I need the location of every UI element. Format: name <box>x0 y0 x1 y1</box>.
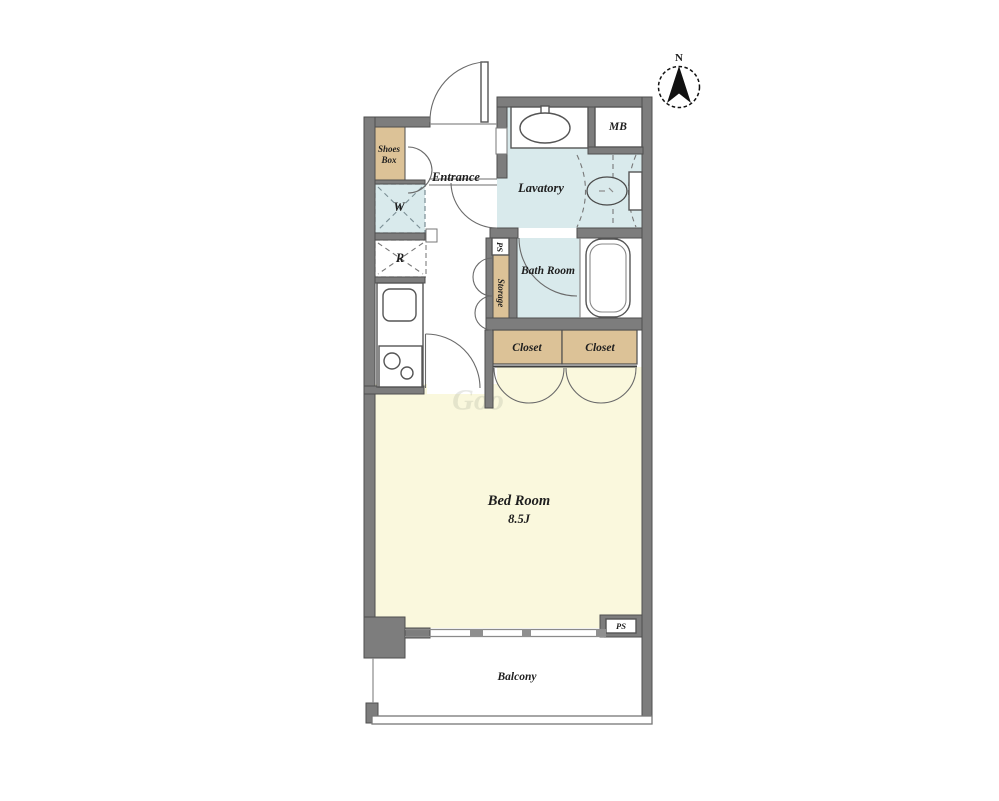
wall <box>577 228 642 238</box>
wall <box>497 97 652 107</box>
window-frame-tick <box>470 629 483 637</box>
shoes-box-label-line1: Shoes <box>378 144 401 154</box>
wash-basin <box>520 113 570 143</box>
pipe-space-upper-label: PS <box>495 242 505 252</box>
stove-burner <box>384 353 400 369</box>
wall-niche <box>496 128 507 154</box>
washing-machine-label: W <box>393 200 405 214</box>
wall <box>642 97 652 723</box>
wall-niche <box>426 229 437 242</box>
wall <box>375 180 425 184</box>
wall-pillar <box>364 617 405 658</box>
bed-room-size-label: 8.5J <box>508 512 531 526</box>
closet-right-label: Closet <box>585 342 615 354</box>
shoes-box-label-line2: Box <box>380 155 397 165</box>
storage-label: Storage <box>496 279 506 308</box>
bath-fixtures <box>580 238 630 318</box>
wall <box>509 238 517 330</box>
front-door-leaf <box>481 62 488 122</box>
bathroom-floor <box>517 238 580 318</box>
kitchen <box>377 283 423 387</box>
entrance-label: Entrance <box>431 170 480 184</box>
bathtub <box>586 239 630 317</box>
floor-plan-page: Goo <box>0 0 999 801</box>
bath-room-label: Bath Room <box>520 265 575 277</box>
compass-north-label: N <box>675 52 683 64</box>
wall <box>588 147 643 154</box>
balcony-railing <box>372 716 652 724</box>
wall <box>485 330 493 408</box>
window-frame-tick <box>522 629 531 637</box>
closet-left-label: Closet <box>512 342 542 354</box>
wall <box>375 277 425 283</box>
floor-plan-image: Goo <box>0 0 999 801</box>
wall <box>375 233 425 240</box>
wall <box>486 318 642 330</box>
lavatory-label: Lavatory <box>517 181 564 195</box>
kitchen-sink <box>383 289 416 321</box>
meter-box-label: MB <box>608 121 627 133</box>
watermark-text: Goo <box>452 384 504 417</box>
stove-burner <box>401 367 413 379</box>
bed-room-label: Bed Room <box>487 493 550 509</box>
wall <box>490 228 518 238</box>
toilet <box>587 177 627 205</box>
toilet-tank <box>629 172 642 210</box>
window-frame-tick <box>596 629 606 637</box>
refrigerator-label: R <box>395 251 404 265</box>
balcony-label: Balcony <box>497 671 538 683</box>
pipe-space-lower-label: PS <box>616 621 626 631</box>
